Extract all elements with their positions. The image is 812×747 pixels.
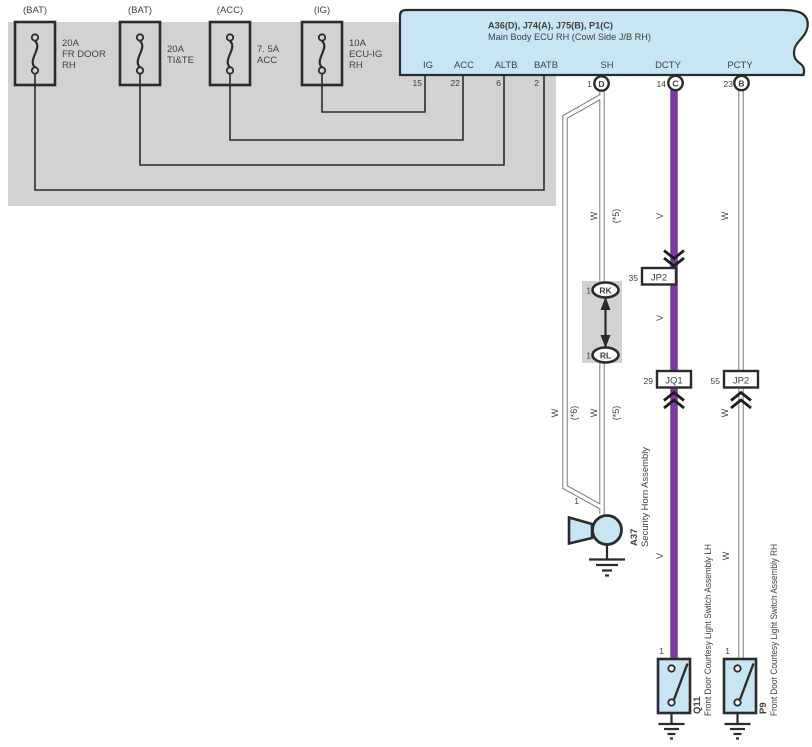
wire-label-v: V — [655, 315, 665, 321]
ecu-pin-num-batb: 2 — [534, 78, 539, 88]
fuse-tag: (ACC) — [217, 5, 243, 16]
fuse-tag: (IG) — [314, 5, 330, 16]
wire-label-w: W — [720, 408, 730, 417]
wire-label-w: W — [589, 211, 599, 220]
switch-id: P9 — [758, 702, 769, 714]
switch-contact — [668, 699, 674, 705]
connector-letter-b: B — [738, 79, 744, 89]
connector-rk-label: RK — [599, 286, 612, 296]
horn-body — [593, 516, 622, 545]
white-wires — [565, 90, 741, 659]
fuse-name-line: RH — [349, 60, 363, 71]
ground-icon — [589, 545, 625, 576]
fuse-rating: 10A — [349, 38, 367, 49]
wire-label-opt6: (*6) — [569, 406, 579, 421]
ecu-subtitle: Main Body ECU RH (Cowl Side J/B RH) — [488, 32, 651, 43]
wire-label-w: W — [720, 211, 730, 220]
junction-jp2-35: JP2 35 — [629, 251, 684, 285]
wire-label-w: W — [721, 551, 731, 560]
wire-label-v: V — [655, 213, 665, 219]
wire-label-opt5: (*5) — [611, 406, 621, 421]
horn-icon — [569, 518, 592, 544]
component-security-horn: 1 A37 Security Horn Assembly — [569, 447, 651, 576]
wire-label-opt5: (*5) — [611, 209, 621, 224]
connector-rl-label: RL — [600, 351, 611, 361]
ecu-pin-num-pcty: 23 — [724, 79, 734, 89]
fuse-name-line: ECU-IG — [349, 49, 382, 60]
switch-contact — [734, 665, 740, 671]
switch-pin: 1 — [725, 646, 730, 656]
switch-pin: 1 — [659, 646, 664, 656]
component-door-switch-lh: 1 Q11 Front Door Courtesy Light Switch A… — [658, 544, 714, 739]
ecu-pin-num-ig: 15 — [413, 78, 423, 88]
connector-letter-d: D — [598, 79, 604, 89]
fuse-tag: (BAT) — [128, 5, 152, 16]
ecu-pin-label-ig: IG — [423, 60, 433, 71]
junction-jq1-29: JQ1 29 — [644, 371, 691, 408]
wire-label-v: V — [655, 553, 665, 559]
ecu-pin-num-dcty: 14 — [657, 79, 667, 89]
fuse-rating: 7. 5A — [257, 44, 280, 55]
junction-name: JP2 — [733, 376, 749, 387]
wiring-diagram-page: (BAT) 20A FR DOOR RH (BAT) 20A TI&TE (AC… — [0, 0, 812, 747]
fuse-name-line: FR DOOR — [62, 49, 106, 60]
fuse-tag: (BAT) — [23, 5, 47, 16]
ecu-pin-label-sh: SH — [600, 60, 613, 71]
wire-label-w: W — [589, 408, 599, 417]
ground-icon — [725, 713, 751, 739]
switch-name: Front Door Courtesy Light Switch Assembl… — [703, 544, 714, 716]
junction-name: JQ1 — [665, 376, 682, 387]
junction-pin: 55 — [711, 376, 721, 386]
ecu-pin-num-altb: 6 — [496, 78, 501, 88]
switch-contact — [668, 665, 674, 671]
ecu-pin-label-pcty: PCTY — [727, 60, 753, 71]
wire-label-w: W — [550, 408, 560, 417]
horn-id: A37 — [629, 529, 640, 546]
switch-contact — [734, 699, 740, 705]
ecu-pin-label-dcty: DCTY — [655, 60, 682, 71]
inline-connector-rk-rl: RK RL 1 1 — [582, 281, 622, 363]
ecu-pin-label-acc: ACC — [454, 60, 474, 71]
switch-id: Q11 — [692, 696, 703, 714]
junction-pin: 29 — [644, 376, 654, 386]
connector-rk-pin: 1 — [586, 286, 591, 296]
ecu-pin-num-sh: 1 — [587, 79, 592, 89]
junction-jp2-55: JP2 55 — [711, 371, 758, 408]
ground-icon — [659, 713, 685, 739]
ecu-title: A36(D), J74(A), J75(B), P1(C) — [488, 21, 613, 32]
wiring-diagram-svg: (BAT) 20A FR DOOR RH (BAT) 20A TI&TE (AC… — [0, 0, 812, 747]
connector-letter-c: C — [672, 79, 678, 89]
fuse-rating: 20A — [62, 38, 80, 49]
fuse-name-line: TI&TE — [167, 55, 194, 66]
horn-pin: 1 — [574, 496, 579, 506]
fuse-name-line: RH — [62, 60, 76, 71]
junction-name: JP2 — [651, 273, 667, 284]
horn-name: Security Horn Assembly — [640, 447, 651, 547]
ecu-pin-label-batb: BATB — [534, 60, 558, 71]
fuse-name-line: ACC — [257, 55, 277, 66]
ecu-pin-num-acc: 22 — [451, 78, 461, 88]
connector-rl-pin: 1 — [586, 351, 591, 361]
ecu-pin-label-altb: ALTB — [494, 60, 517, 71]
junction-pin: 35 — [629, 273, 639, 283]
switch-name: Front Door Courtesy Light Switch Assembl… — [769, 544, 780, 716]
component-door-switch-rh: 1 P9 Front Door Courtesy Light Switch As… — [724, 544, 780, 739]
fuse-rating: 20A — [167, 44, 185, 55]
